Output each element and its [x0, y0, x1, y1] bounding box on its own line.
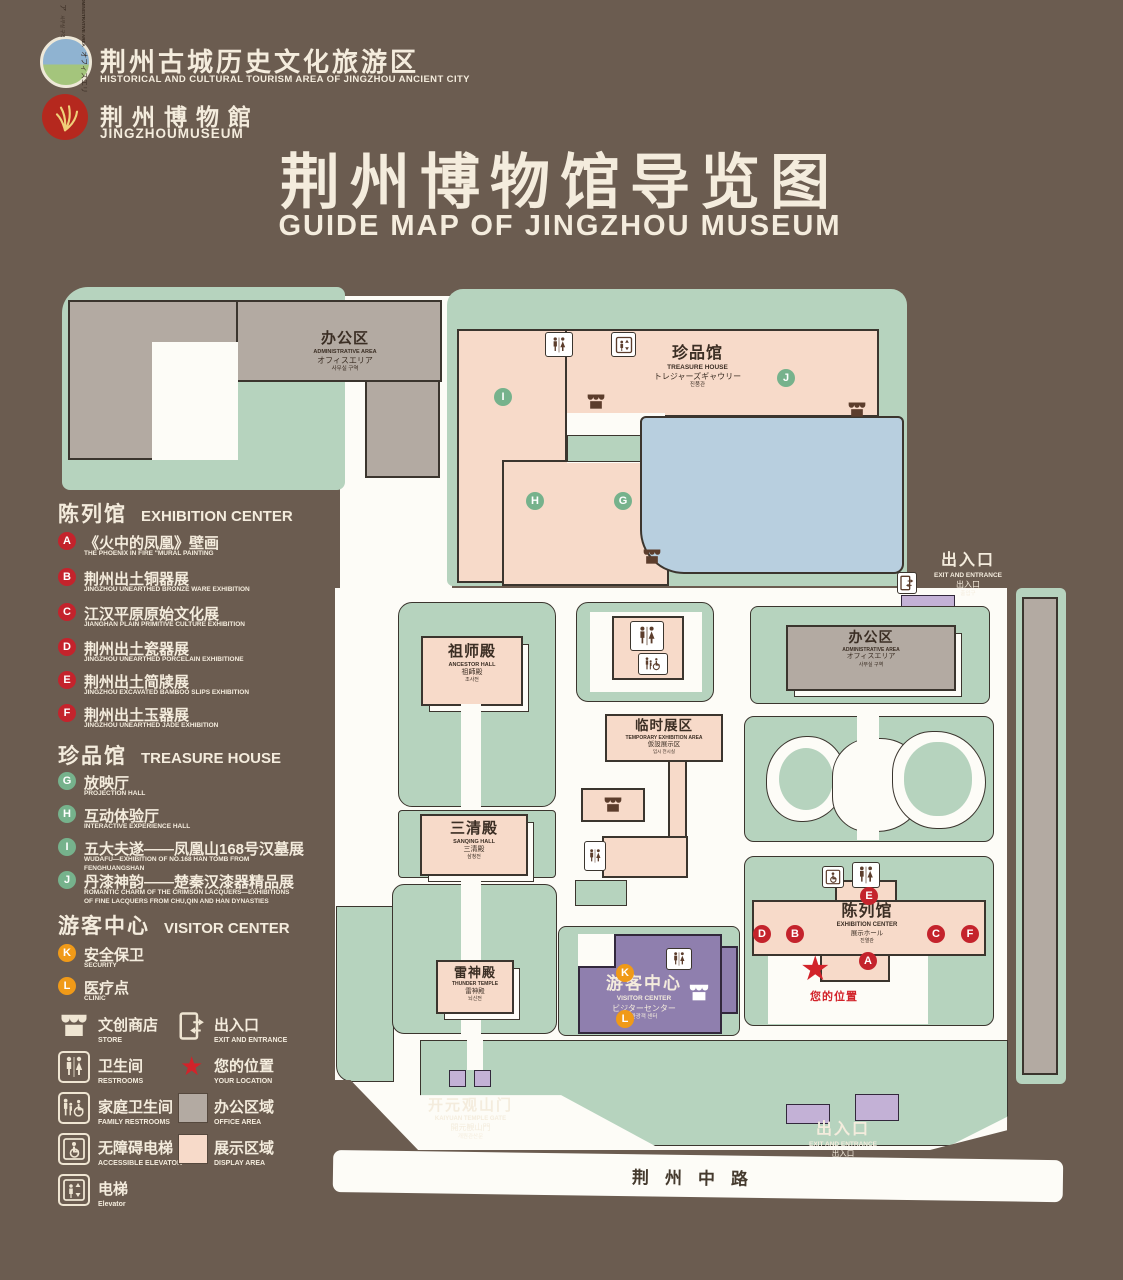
treasure-house-label: 珍品馆 TREASURE HOUSE トレジャーズギャウリー 진품관 — [640, 344, 755, 389]
temporary-exhibition-building — [602, 836, 688, 878]
section-title-cn: 珍品馆 — [58, 740, 127, 770]
exhibition-center-label: 陈列馆 EXHIBITION CENTER 展示ホール 진열관 — [812, 902, 922, 944]
badge-I: I — [58, 838, 76, 856]
section-exhibition-center: 陈列馆 EXHIBITION CENTER — [58, 498, 293, 528]
restroom-icon — [584, 841, 606, 871]
legend-item-C: C 江汉平原原始文化展 JIANGHAN PLAIN PRIMITIVE CUL… — [58, 603, 310, 637]
symbol-display-area: 展示区域 DISPLAY AREA — [214, 1137, 334, 1167]
restroom-icon — [58, 1051, 90, 1083]
symbol-exit: 出入口 EXIT AND ENTRANCE — [214, 1014, 334, 1044]
admin-strip-label: 办公区 ADMINISTRATIVE AREA オフィスエリア 사무실 구역 — [54, 0, 96, 96]
accessible-elevator-icon — [58, 1133, 90, 1165]
exhibition-center-building — [820, 954, 890, 982]
gate-pillar — [474, 1070, 491, 1087]
page-title: 荆州博物馆导览图 — [240, 134, 880, 221]
garden-entry — [857, 824, 879, 840]
legend-item-L: L 医疗点 CLINIC 1F — [58, 977, 310, 1011]
marker-G: G — [614, 492, 632, 510]
admin-nw-label: 办公区 ADMINISTRATIVE AREA オフィスエリア 사무실 구역 — [290, 330, 400, 373]
lake — [640, 416, 904, 574]
visitor-center-building — [720, 946, 738, 1014]
section-visitor-center: 游客中心 VISITOR CENTER — [58, 910, 290, 940]
family-restroom-icon — [638, 653, 668, 675]
entrance-gate-south — [855, 1094, 899, 1121]
store-icon — [58, 1010, 90, 1042]
page-subtitle: GUIDE MAP OF JINGZHOU MUSEUM — [240, 210, 880, 243]
section-title-en: VISITOR CENTER — [164, 920, 290, 937]
family-restroom-icon — [58, 1092, 90, 1124]
office-area-swatch — [178, 1093, 208, 1123]
visitor-center-label: 游客中心 VISITOR CENTER ビジターセンター 관광객 센터 — [588, 973, 700, 1021]
legend-item-F: F 荆州出土玉器展 JINGZHOU UNEARTHED JADE EXHIBI… — [58, 704, 310, 738]
thunder-temple-label: 雷神殿 THUNDER TEMPLE 雷神殿 뇌신전 — [436, 965, 514, 1002]
garden-entry — [857, 714, 879, 742]
marker-D: D — [753, 925, 771, 943]
section-treasure-house: 珍品馆 TREASURE HOUSE — [58, 740, 281, 770]
badge-H: H — [58, 805, 76, 823]
location-icon: ★ — [180, 1053, 203, 1079]
store-icon — [845, 399, 869, 421]
gate-passage — [467, 1040, 483, 1070]
ancestor-hall-label: 祖师殿 ANCESTOR HALL 祖師殿 조사전 — [421, 643, 523, 684]
symbol-office-area: 办公区域 OFFICE AREA — [214, 1096, 334, 1126]
restroom-icon — [666, 948, 692, 970]
admin-building-strip — [1022, 597, 1058, 1075]
badge-D: D — [58, 638, 76, 656]
marker-L: L — [616, 1010, 634, 1028]
marker-F: F — [961, 925, 979, 943]
your-location-star: ★ — [800, 952, 830, 986]
display-area-swatch — [178, 1134, 208, 1164]
temporary-exhibition-label: 临时展区 TEMPORARY EXHIBITION AREA 仮設展示区 임시 … — [605, 718, 723, 755]
your-location-label: 您的位置 — [784, 988, 884, 1004]
marker-J: J — [777, 369, 795, 387]
store-building — [581, 788, 645, 822]
elevator-icon — [611, 332, 636, 357]
legend-item-G: G 放映厅 PROJECTION HALL 1F — [58, 772, 310, 806]
marker-C: C — [927, 925, 945, 943]
road-label: 荆州中路 — [632, 1163, 764, 1190]
legend-item-B: B 荆州出土铜器展 JINGZHOU UNEARTHED BRONZE WARE… — [58, 568, 310, 602]
admin-building-nw — [365, 380, 440, 478]
store-icon — [602, 795, 624, 815]
restroom-icon — [545, 332, 573, 357]
legend-item-A: A 《火中的凤凰》壁画 THE PHOENIX IN FIRE "MURAL P… — [58, 532, 310, 566]
marker-K: K — [616, 964, 634, 982]
legend-item-I: I 五大夫遂——凤凰山168号汉墓展 WUDAFU—EXHIBITION OF … — [58, 838, 310, 872]
admin-east-label: 办公区 ADMINISTRATIVE AREA オフィスエリア 사무실 구역 — [816, 629, 926, 668]
badge-F: F — [58, 704, 76, 722]
restroom-icon — [630, 621, 664, 651]
symbol-your-location: 您的位置 YOUR LOCATION — [214, 1055, 334, 1085]
guide-map-poster: 荆州古城历史文化旅游区 HISTORICAL AND CULTURAL TOUR… — [0, 0, 1123, 1280]
legend-item-J: J 丹漆神韵——楚秦汉漆器精品展 ROMANTIC CHARM OF THE C… — [58, 871, 310, 915]
legend-item-H: H 互动体验厅 INTERACTIVE EXPERIENCE HALL 1F — [58, 805, 310, 839]
exit-icon — [897, 572, 917, 594]
green-stub — [575, 880, 627, 906]
gate-pillar — [449, 1070, 466, 1087]
marker-B: B — [786, 925, 804, 943]
kaiyuan-gate-label: 开元观山门 KAIYUAN TEMPLE GATE 開元観山門 개원관산문 — [408, 1096, 533, 1141]
elevator-icon — [58, 1174, 90, 1206]
museum-subtitle: JINGZHOUMUSEUM — [100, 126, 244, 141]
corridor — [461, 704, 481, 810]
accessible-elevator-icon — [822, 866, 844, 888]
corridor — [461, 876, 481, 1042]
marker-E: E — [860, 887, 878, 905]
museum-logo — [42, 94, 88, 140]
store-icon — [686, 980, 712, 1006]
section-title-cn: 游客中心 — [58, 910, 150, 940]
badge-J: J — [58, 871, 76, 889]
legend-item-E: E 荆州出土简牍展 JINGZHOU EXCAVATED BAMBOO SLIP… — [58, 671, 310, 705]
badge-E: E — [58, 671, 76, 689]
exit-icon — [176, 1010, 208, 1042]
store-icon — [640, 546, 664, 568]
marker-I: I — [494, 388, 512, 406]
badge-L: L — [58, 977, 76, 995]
garden-lawn — [904, 742, 972, 816]
badge-A: A — [58, 532, 76, 550]
section-title-en: EXHIBITION CENTER — [141, 508, 293, 525]
marker-H: H — [526, 492, 544, 510]
legend-item-K: K 安全保卫 SECURITY 1F — [58, 944, 310, 978]
badge-G: G — [58, 772, 76, 790]
phoenix-antler-icon — [49, 101, 81, 133]
sanqing-hall-label: 三清殿 SANQING HALL 三清殿 삼청전 — [420, 820, 528, 861]
section-title-cn: 陈列馆 — [58, 498, 127, 528]
road-south: 荆州中路 — [333, 1150, 1064, 1202]
store-icon — [584, 391, 608, 413]
zone-southwest-edge — [336, 906, 394, 1082]
legend-item-D: D 荆州出土瓷器展 JINGZHOU UNEARTHED PORCELAIN E… — [58, 638, 310, 672]
marker-A: A — [859, 952, 877, 970]
restroom-icon — [852, 862, 880, 888]
courtyard — [152, 342, 238, 460]
badge-B: B — [58, 568, 76, 586]
garden-lawn — [779, 748, 833, 810]
path — [578, 934, 616, 968]
symbol-elevator: 电梯 Elevator — [98, 1178, 218, 1208]
tourism-area-subtitle: HISTORICAL AND CULTURAL TOURISM AREA OF … — [100, 74, 470, 85]
exit-ne-label: 出入口 EXIT AND ENTRANCE 出入口 출입구 — [918, 551, 1018, 598]
badge-K: K — [58, 944, 76, 962]
section-title-en: TREASURE HOUSE — [141, 750, 281, 767]
badge-C: C — [58, 603, 76, 621]
